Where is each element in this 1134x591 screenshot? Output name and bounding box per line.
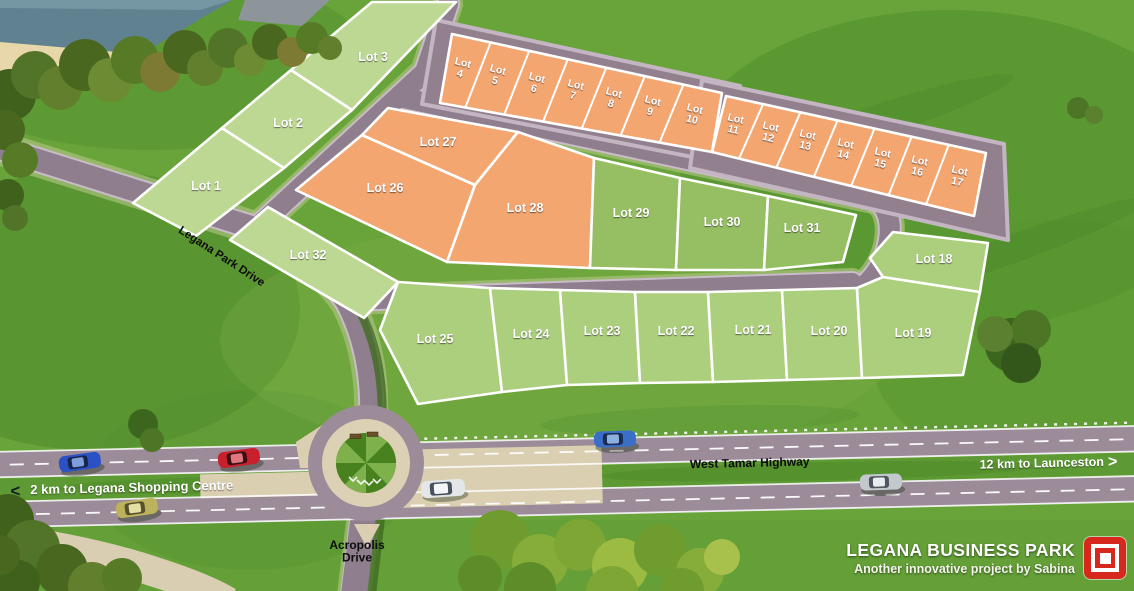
lot-3-label[interactable]: Lot 3 <box>358 50 388 64</box>
lot-27-label[interactable]: Lot 27 <box>420 135 457 149</box>
park-title: LEGANA BUSINESS PARK <box>846 540 1075 561</box>
bench <box>367 432 378 437</box>
lot-29-label[interactable]: Lot 29 <box>613 206 650 220</box>
lot-20-label[interactable]: Lot 20 <box>811 324 848 338</box>
lot-2-label[interactable]: Lot 2 <box>273 116 303 130</box>
site-plan: Lot 1 Lot 2 Lot 3 Lot4 Lot5 Lot6 Lot7 Lo… <box>0 0 1134 591</box>
lot-31-label[interactable]: Lot 31 <box>784 221 821 235</box>
brand-block: LEGANA BUSINESS PARK Another innovative … <box>846 537 1126 579</box>
lot-21-label[interactable]: Lot 21 <box>735 323 772 337</box>
lot-28-label[interactable]: Lot 28 <box>507 201 544 215</box>
roundabout <box>308 405 424 521</box>
west-arrow-icon: < <box>10 481 20 500</box>
lot-1-label[interactable]: Lot 1 <box>191 179 221 193</box>
lot-24-label[interactable]: Lot 24 <box>513 327 550 341</box>
site-plan-svg: Lot 1 Lot 2 Lot 3 Lot4 Lot5 Lot6 Lot7 Lo… <box>0 0 1134 591</box>
lot-26-label[interactable]: Lot 26 <box>367 181 404 195</box>
west-tamar-highway-label: West Tamar Highway <box>690 454 810 471</box>
lot-32-label[interactable]: Lot 32 <box>290 248 327 262</box>
car-silver <box>860 473 906 497</box>
lot-22-label[interactable]: Lot 22 <box>658 324 695 338</box>
east-arrow-icon: > <box>1108 454 1118 471</box>
lot-25-label[interactable]: Lot 25 <box>417 332 454 346</box>
direction-east-label: 12 km to Launceston <box>979 455 1104 472</box>
park-subtitle: Another innovative project by Sabina <box>846 562 1075 576</box>
lot-30-label[interactable]: Lot 30 <box>704 215 741 229</box>
lot-23-label[interactable]: Lot 23 <box>584 324 621 338</box>
lot-18-label[interactable]: Lot 18 <box>916 252 953 266</box>
lot-19-label[interactable]: Lot 19 <box>895 326 932 340</box>
car-blue-highway <box>594 430 640 454</box>
bench <box>350 434 361 439</box>
sabina-logo-icon <box>1084 537 1126 579</box>
